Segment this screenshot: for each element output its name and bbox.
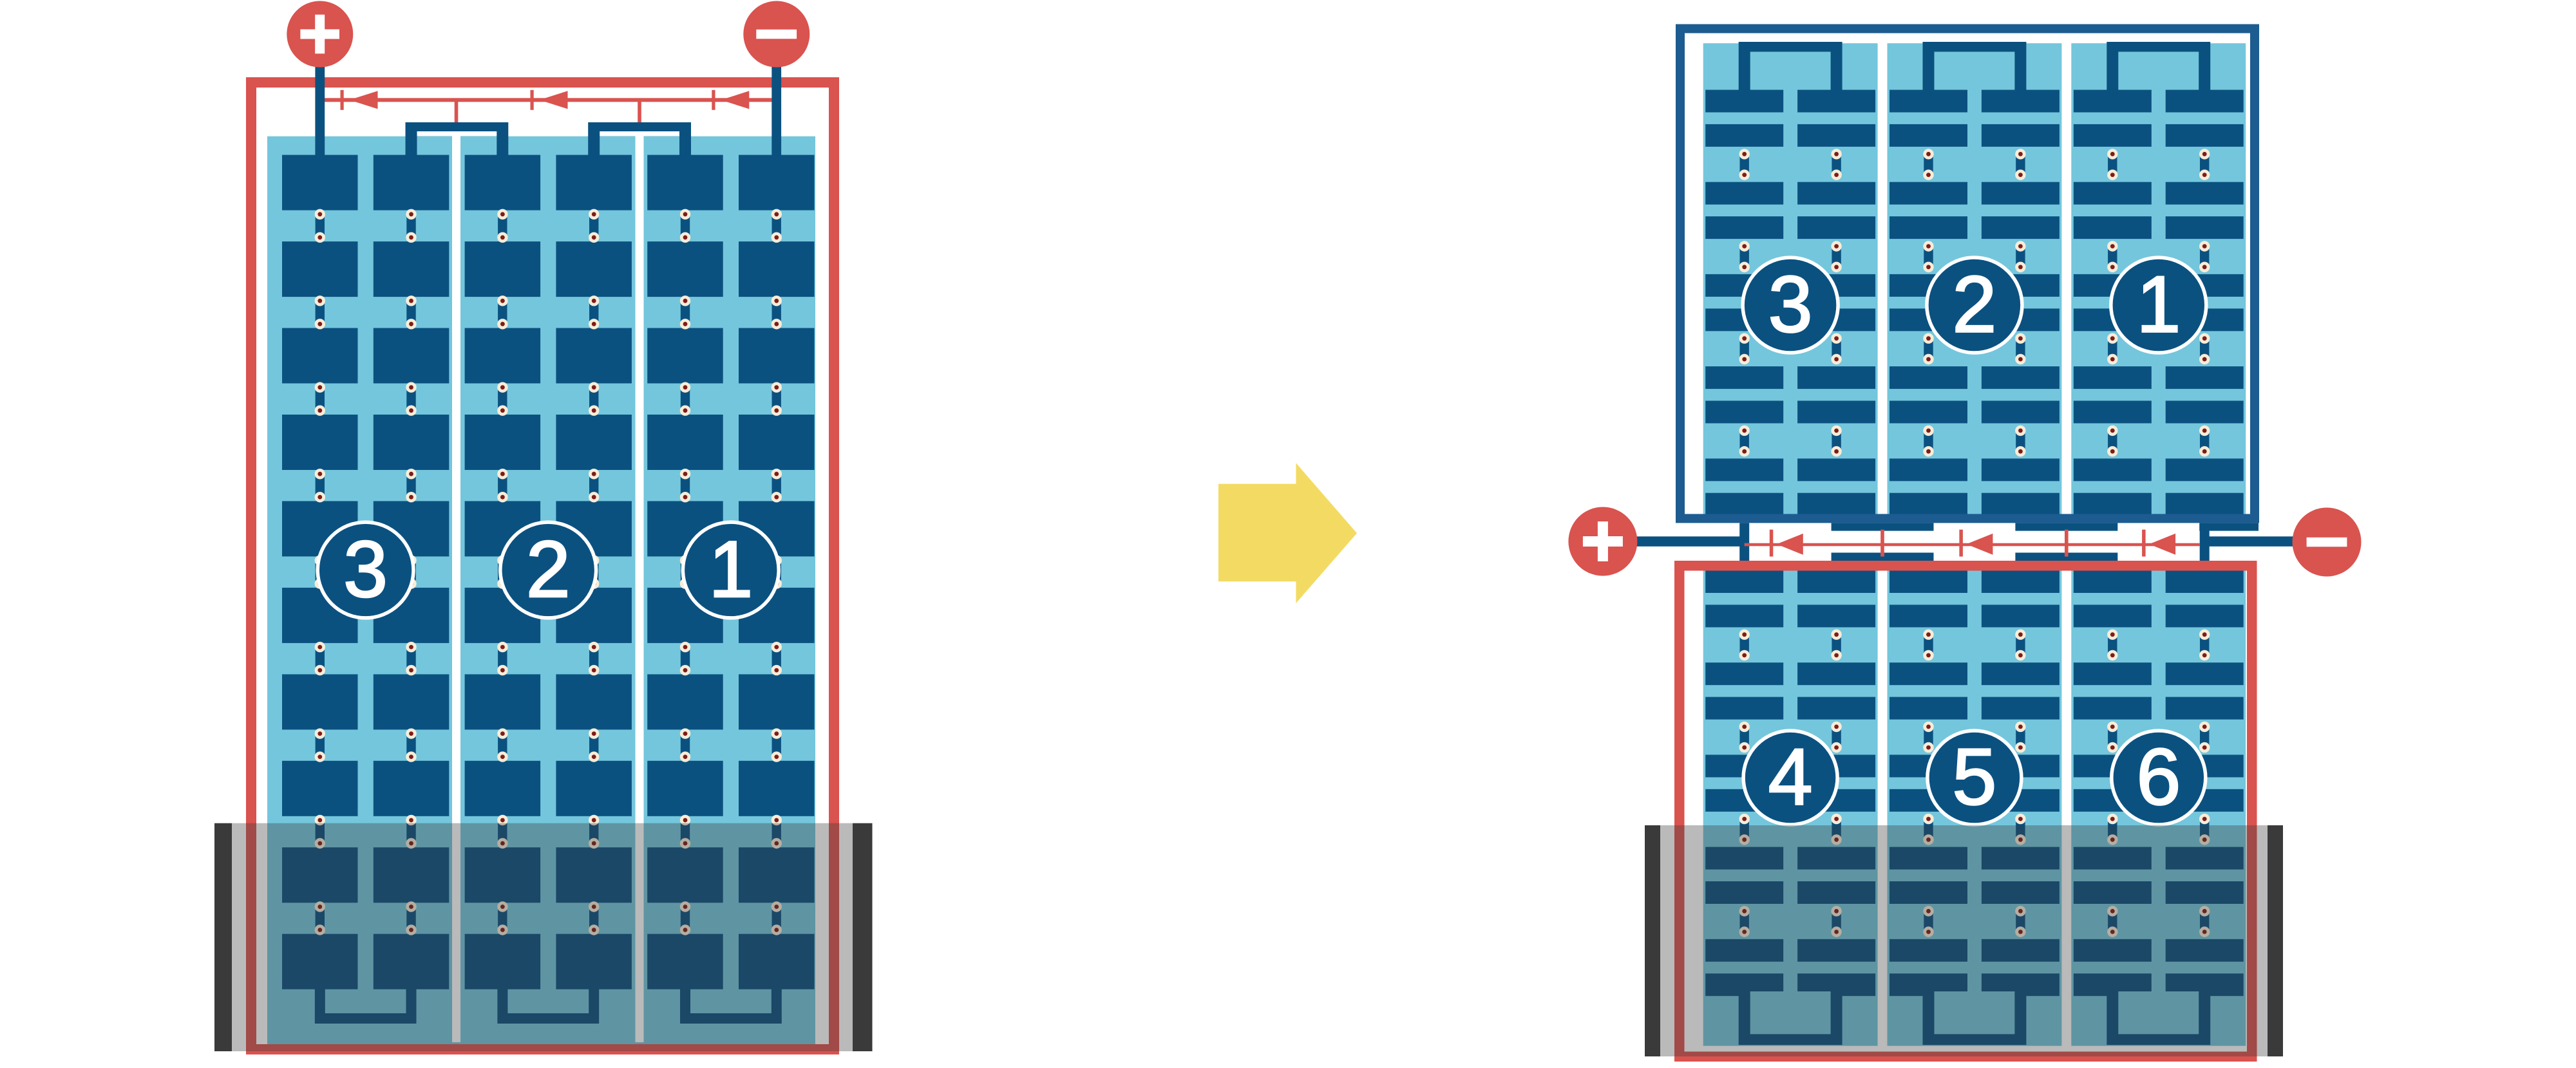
- svg-text:4: 4: [1768, 733, 1813, 822]
- svg-text:5: 5: [1952, 733, 1996, 822]
- svg-text:2: 2: [1952, 261, 1996, 350]
- svg-text:6: 6: [2136, 733, 2181, 822]
- svg-text:1: 1: [2136, 261, 2181, 350]
- svg-text:2: 2: [526, 525, 571, 614]
- svg-text:3: 3: [1768, 261, 1813, 350]
- svg-text:3: 3: [343, 525, 388, 614]
- svg-text:1: 1: [708, 525, 753, 614]
